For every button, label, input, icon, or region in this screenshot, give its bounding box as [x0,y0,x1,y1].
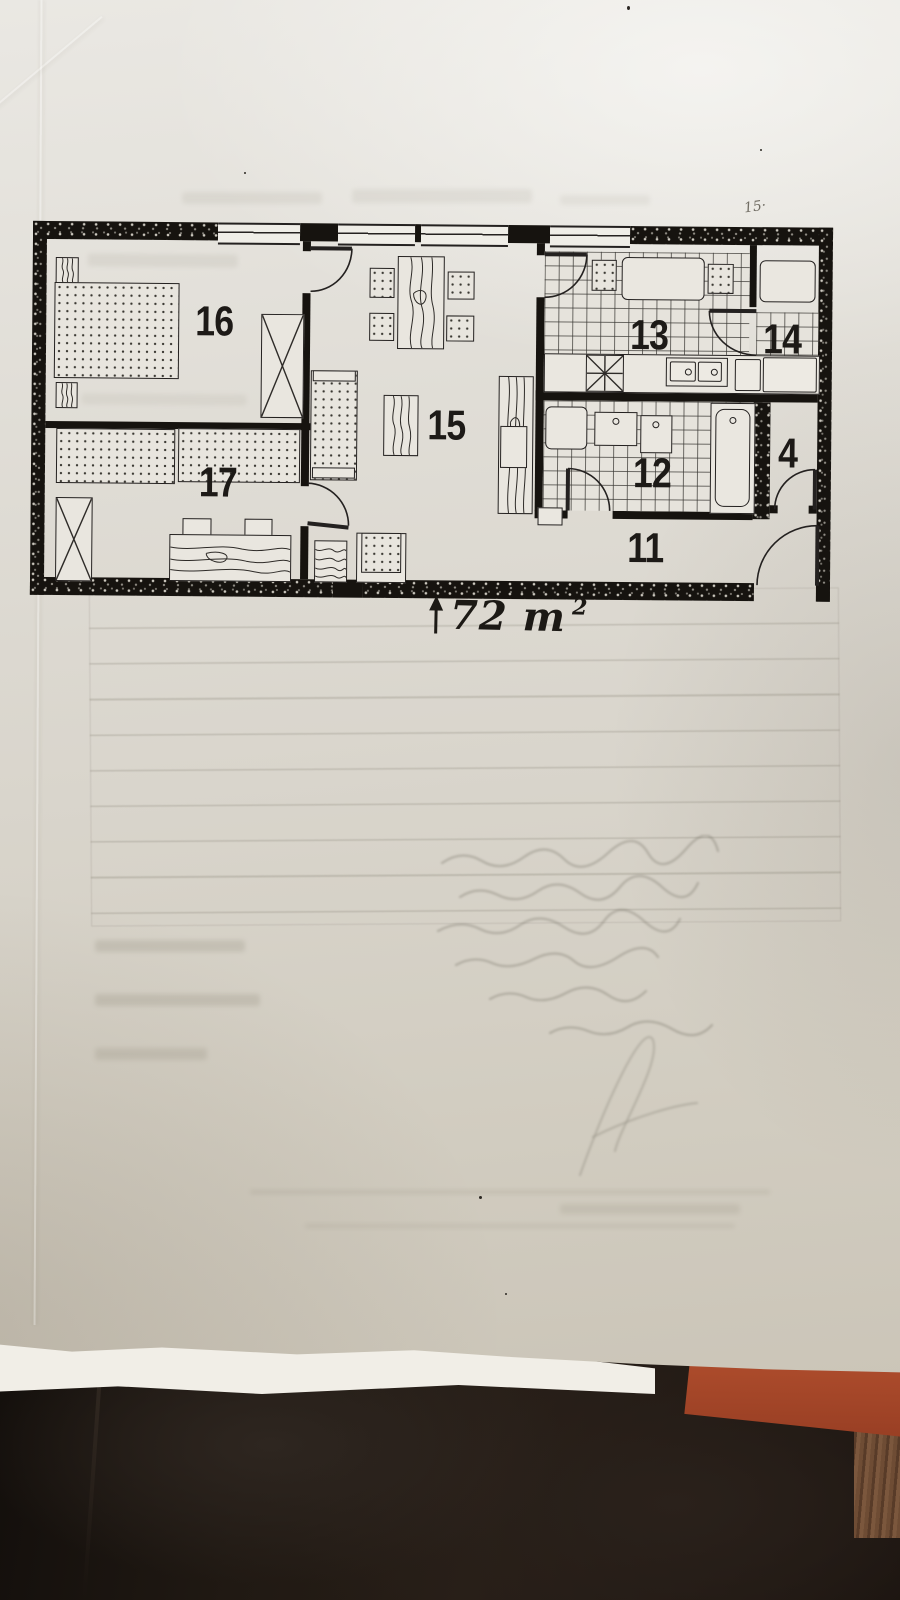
dust-speck [627,6,630,10]
floor-plan: 16 17 15 [30,217,833,602]
ghost-text-smudge [352,189,532,203]
ghost-line [305,1224,735,1228]
door-swings [30,217,833,602]
ghost-text-smudge [560,1204,740,1214]
dust-speck [505,1293,507,1295]
pencil-note: 15· [743,198,767,217]
dust-speck [479,1196,482,1199]
ghost-text-smudge [560,195,650,205]
ghost-label-smudge [95,1048,207,1060]
dust-speck [244,172,246,174]
ghost-line [250,1190,770,1194]
up-arrow-icon [428,595,445,635]
area-value: 72 m [450,596,567,638]
paper-corner-crease [0,16,103,108]
paper-crease [34,0,43,1325]
ghost-label-smudge [95,940,245,952]
ghost-signature [525,985,725,1185]
area-annotation: 72 m2 [428,595,589,638]
dust-speck [760,149,762,151]
ghost-text-smudge [182,192,322,204]
paper-sheet: 15· [0,0,900,1382]
area-superscript: 2 [572,596,589,618]
ghost-label-smudge [95,994,260,1006]
